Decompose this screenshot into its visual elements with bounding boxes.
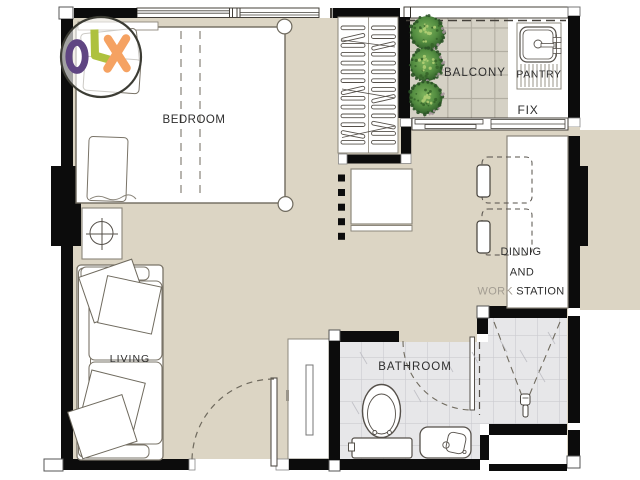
svg-text:BEDROOM: BEDROOM: [163, 114, 226, 126]
svg-text:LIVING: LIVING: [110, 353, 150, 365]
svg-text:AND: AND: [510, 267, 534, 279]
svg-text:PANTRY: PANTRY: [516, 69, 561, 81]
svg-text:WORK STATION: WORK STATION: [478, 286, 565, 298]
svg-text:FIX: FIX: [517, 103, 538, 117]
svg-text:BATHROOM: BATHROOM: [378, 361, 452, 373]
svg-text:BALCONY: BALCONY: [444, 67, 506, 79]
svg-text:DINNIG: DINNIG: [501, 246, 542, 258]
